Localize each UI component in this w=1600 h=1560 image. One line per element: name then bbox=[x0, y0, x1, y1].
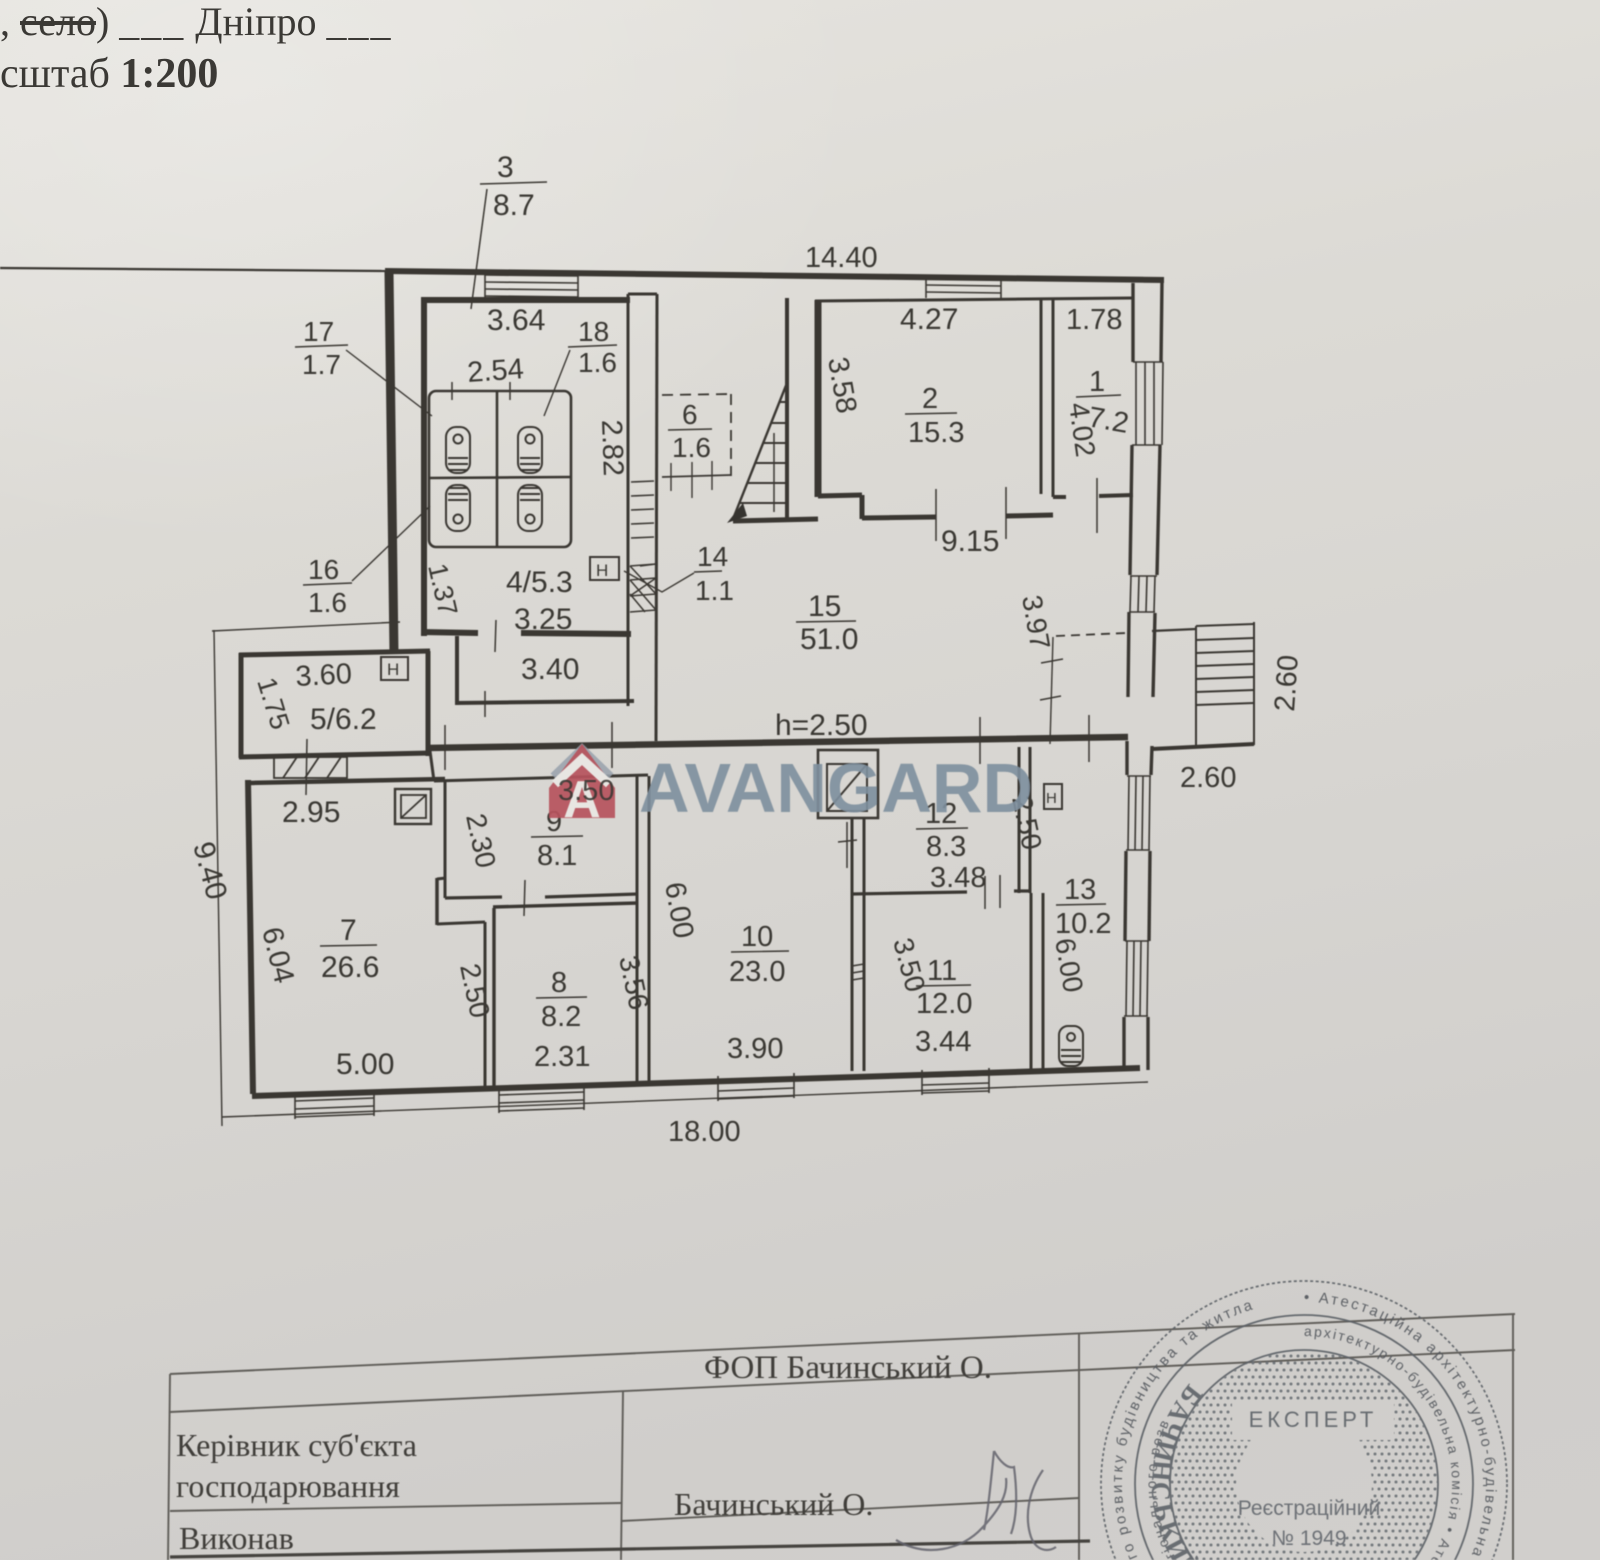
svg-text:3.58: 3.58 bbox=[821, 355, 862, 416]
svg-text:2.50: 2.50 bbox=[454, 961, 496, 1021]
svg-text:AVANGARD: AVANGARD bbox=[639, 749, 1033, 827]
svg-text:15.3: 15.3 bbox=[908, 417, 964, 449]
svg-text:6.04: 6.04 bbox=[255, 924, 300, 987]
svg-text:1.7: 1.7 bbox=[302, 349, 341, 380]
svg-text:51.0: 51.0 bbox=[800, 623, 858, 656]
svg-text:h=2.50: h=2.50 bbox=[775, 709, 868, 742]
svg-text:17: 17 bbox=[303, 316, 334, 347]
svg-text:15: 15 bbox=[808, 590, 841, 623]
svg-text:господарювання: господарювання bbox=[176, 1468, 400, 1504]
svg-text:10.2: 10.2 bbox=[1055, 908, 1111, 940]
svg-text:9.15: 9.15 bbox=[941, 525, 999, 558]
svg-text:С: С bbox=[1145, 1481, 1176, 1502]
svg-text:3.64: 3.64 bbox=[487, 304, 545, 337]
svg-text:5/6.2: 5/6.2 bbox=[310, 703, 377, 736]
svg-text:3.25: 3.25 bbox=[514, 603, 572, 636]
svg-text:5.00: 5.00 bbox=[336, 1048, 394, 1081]
svg-text:18.00: 18.00 bbox=[668, 1116, 741, 1148]
svg-text:14.40: 14.40 bbox=[805, 242, 878, 274]
svg-text:3.40: 3.40 bbox=[521, 653, 579, 686]
svg-text:ФОП Бачинський О.: ФОП Бачинський О. bbox=[704, 1350, 992, 1386]
svg-text:2.95: 2.95 bbox=[282, 796, 340, 829]
svg-text:3.90: 3.90 bbox=[727, 1033, 783, 1065]
svg-text:4.02: 4.02 bbox=[1063, 401, 1101, 459]
svg-text:2.31: 2.31 bbox=[534, 1041, 590, 1073]
svg-text:Реєстраційний: Реєстраційний bbox=[1238, 1497, 1380, 1520]
svg-text:2.60: 2.60 bbox=[1180, 762, 1236, 794]
svg-text:H: H bbox=[387, 660, 399, 679]
svg-text:2.30: 2.30 bbox=[460, 811, 502, 871]
svg-text:7: 7 bbox=[340, 914, 357, 947]
svg-text:1: 1 bbox=[1089, 366, 1105, 398]
svg-text:Н: Н bbox=[1146, 1459, 1178, 1483]
svg-text:13: 13 bbox=[1064, 874, 1096, 906]
svg-text:1.1: 1.1 bbox=[695, 575, 734, 606]
svg-text:16: 16 bbox=[308, 554, 339, 585]
svg-text:H: H bbox=[596, 561, 608, 580]
svg-text:12.0: 12.0 bbox=[916, 988, 972, 1020]
svg-text:8: 8 bbox=[551, 967, 567, 999]
svg-text:3.44: 3.44 bbox=[915, 1026, 971, 1058]
svg-text:1.6: 1.6 bbox=[308, 587, 347, 618]
svg-text:6.00: 6.00 bbox=[1049, 936, 1089, 995]
svg-text:2.82: 2.82 bbox=[595, 419, 629, 477]
svg-text:H: H bbox=[1046, 790, 1057, 807]
svg-text:№ 1949: № 1949 bbox=[1271, 1527, 1346, 1550]
svg-text:6.00: 6.00 bbox=[658, 880, 699, 941]
svg-text:2.54: 2.54 bbox=[466, 353, 525, 389]
svg-text:18: 18 bbox=[578, 316, 609, 347]
svg-text:ЕКСПЕРТ: ЕКСПЕРТ bbox=[1249, 1407, 1378, 1432]
svg-text:1.78: 1.78 bbox=[1066, 304, 1122, 336]
svg-text:3: 3 bbox=[497, 151, 514, 184]
svg-text:3.60: 3.60 bbox=[295, 658, 353, 693]
svg-text:26.6: 26.6 bbox=[321, 951, 379, 984]
svg-text:1.6: 1.6 bbox=[578, 347, 617, 378]
svg-text:11: 11 bbox=[927, 955, 957, 987]
svg-text:4.27: 4.27 bbox=[900, 303, 958, 336]
svg-text:1.37: 1.37 bbox=[422, 561, 463, 619]
svg-text:10: 10 bbox=[741, 921, 773, 953]
svg-text:1.75: 1.75 bbox=[251, 674, 295, 733]
svg-text:8.3: 8.3 bbox=[926, 831, 966, 863]
svg-text:14: 14 bbox=[697, 541, 728, 572]
svg-text:8.1: 8.1 bbox=[537, 840, 577, 872]
svg-text:3.50: 3.50 bbox=[558, 775, 614, 807]
svg-text:8.2: 8.2 bbox=[541, 1001, 581, 1033]
svg-text:9.40: 9.40 bbox=[186, 838, 233, 903]
svg-text:3.48: 3.48 bbox=[930, 862, 986, 894]
svg-text:Бачинський О.: Бачинський О. bbox=[674, 1486, 873, 1522]
svg-text:2.60: 2.60 bbox=[1269, 654, 1305, 713]
svg-text:23.0: 23.0 bbox=[729, 956, 785, 988]
svg-text:4/5.3: 4/5.3 bbox=[506, 566, 573, 599]
svg-text:Керівник суб'єкта: Керівник суб'єкта bbox=[176, 1427, 417, 1463]
svg-text:Виконав: Виконав bbox=[179, 1520, 294, 1556]
svg-text:1.6: 1.6 bbox=[672, 432, 711, 463]
svg-text:2: 2 bbox=[922, 383, 938, 415]
svg-text:3.97: 3.97 bbox=[1016, 593, 1056, 652]
svg-text:8.7: 8.7 bbox=[493, 189, 535, 222]
svg-text:6: 6 bbox=[682, 399, 698, 430]
